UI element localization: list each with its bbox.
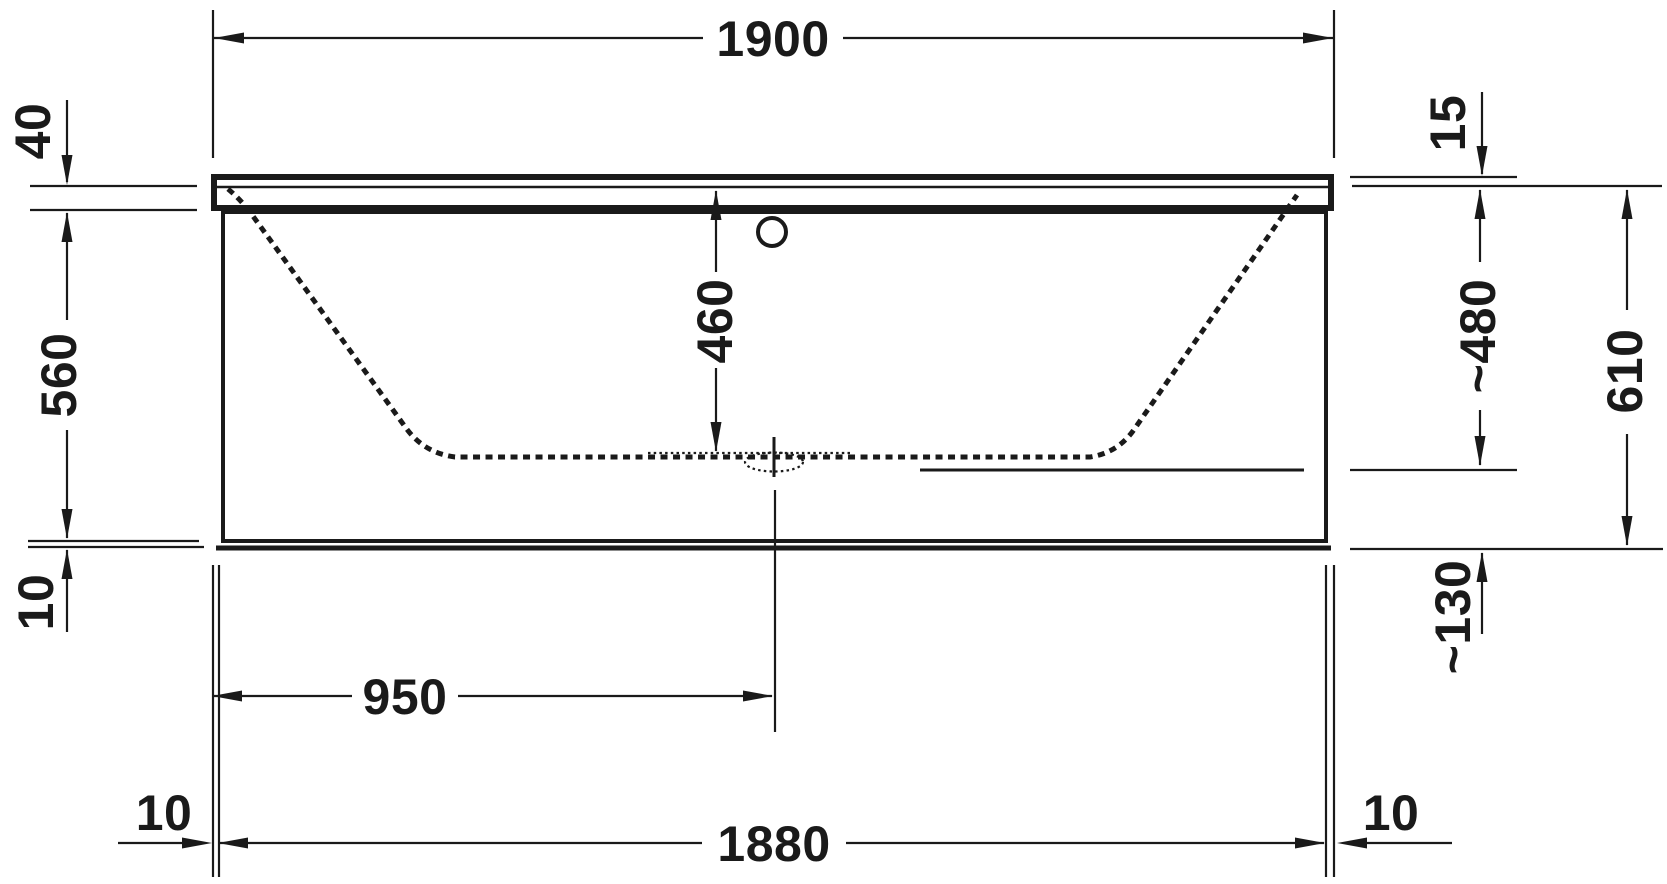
dimension-overall-length: 1900 [213,10,1334,158]
arrow-right-icon [743,691,773,702]
overflow-hole-icon [758,218,786,246]
dimension-inner-floor-to-base: ~130 [1425,552,1488,674]
dim-label-rim-overhang-right: 10 [1363,785,1420,841]
arrow-left-icon [214,33,244,44]
arrow-left-icon [218,838,248,849]
dimension-apron-height: 560 [31,212,87,539]
bathtub-rim [214,177,1331,208]
inner-basin-profile-dashed [228,189,1297,457]
dim-label-rim-overhang-left: 10 [136,785,193,841]
dim-label-rim-to-inner-floor: ~480 [1450,279,1506,394]
arrow-down-icon [1477,146,1488,176]
dim-label-apron-height: 560 [31,333,87,418]
dim-label-inner-depth: 460 [687,279,743,364]
arrow-down-icon [62,509,73,539]
dim-label-body-length: 1880 [717,816,830,872]
dim-label-inner-floor-to-base: ~130 [1425,560,1481,675]
arrow-down-icon [62,155,73,185]
dim-label-rim-top-inset: 15 [1420,95,1476,152]
dim-label-drain-center-from-left: 950 [363,669,448,725]
drawing-canvas: 1900 40 560 10 460 950 [0,0,1667,884]
dimension-base-gap-left: 10 [8,541,204,632]
dim-label-overall-height: 610 [1597,329,1653,414]
arrow-down-icon [1475,436,1486,466]
dimension-rim-overhang-right: 10 [1337,785,1452,849]
dimension-drain-center-from-left: 950 [212,490,775,732]
arrow-left-icon [212,691,242,702]
dimension-rim-top-inset: 15 [1350,92,1662,186]
arrow-down-icon [1622,516,1633,546]
technical-drawing: 1900 40 560 10 460 950 [0,0,1667,884]
dimension-rim-overhang-left: 10 [118,785,212,849]
arrow-right-icon [1303,33,1333,44]
bathtub-outline [214,177,1331,548]
dimension-inner-depth: 460 [687,190,743,452]
dimension-rim-to-inner-floor: ~480 [1350,189,1517,470]
dim-label-base-gap-left: 10 [8,574,64,631]
arrow-right-icon [1295,838,1325,849]
dimension-overall-height: 610 [1350,189,1663,549]
dimension-rim-edge-height: 40 [5,100,197,210]
dim-label-rim-edge-height: 40 [5,103,61,160]
arrow-down-icon [711,422,722,452]
dim-label-overall-length: 1900 [716,11,829,67]
